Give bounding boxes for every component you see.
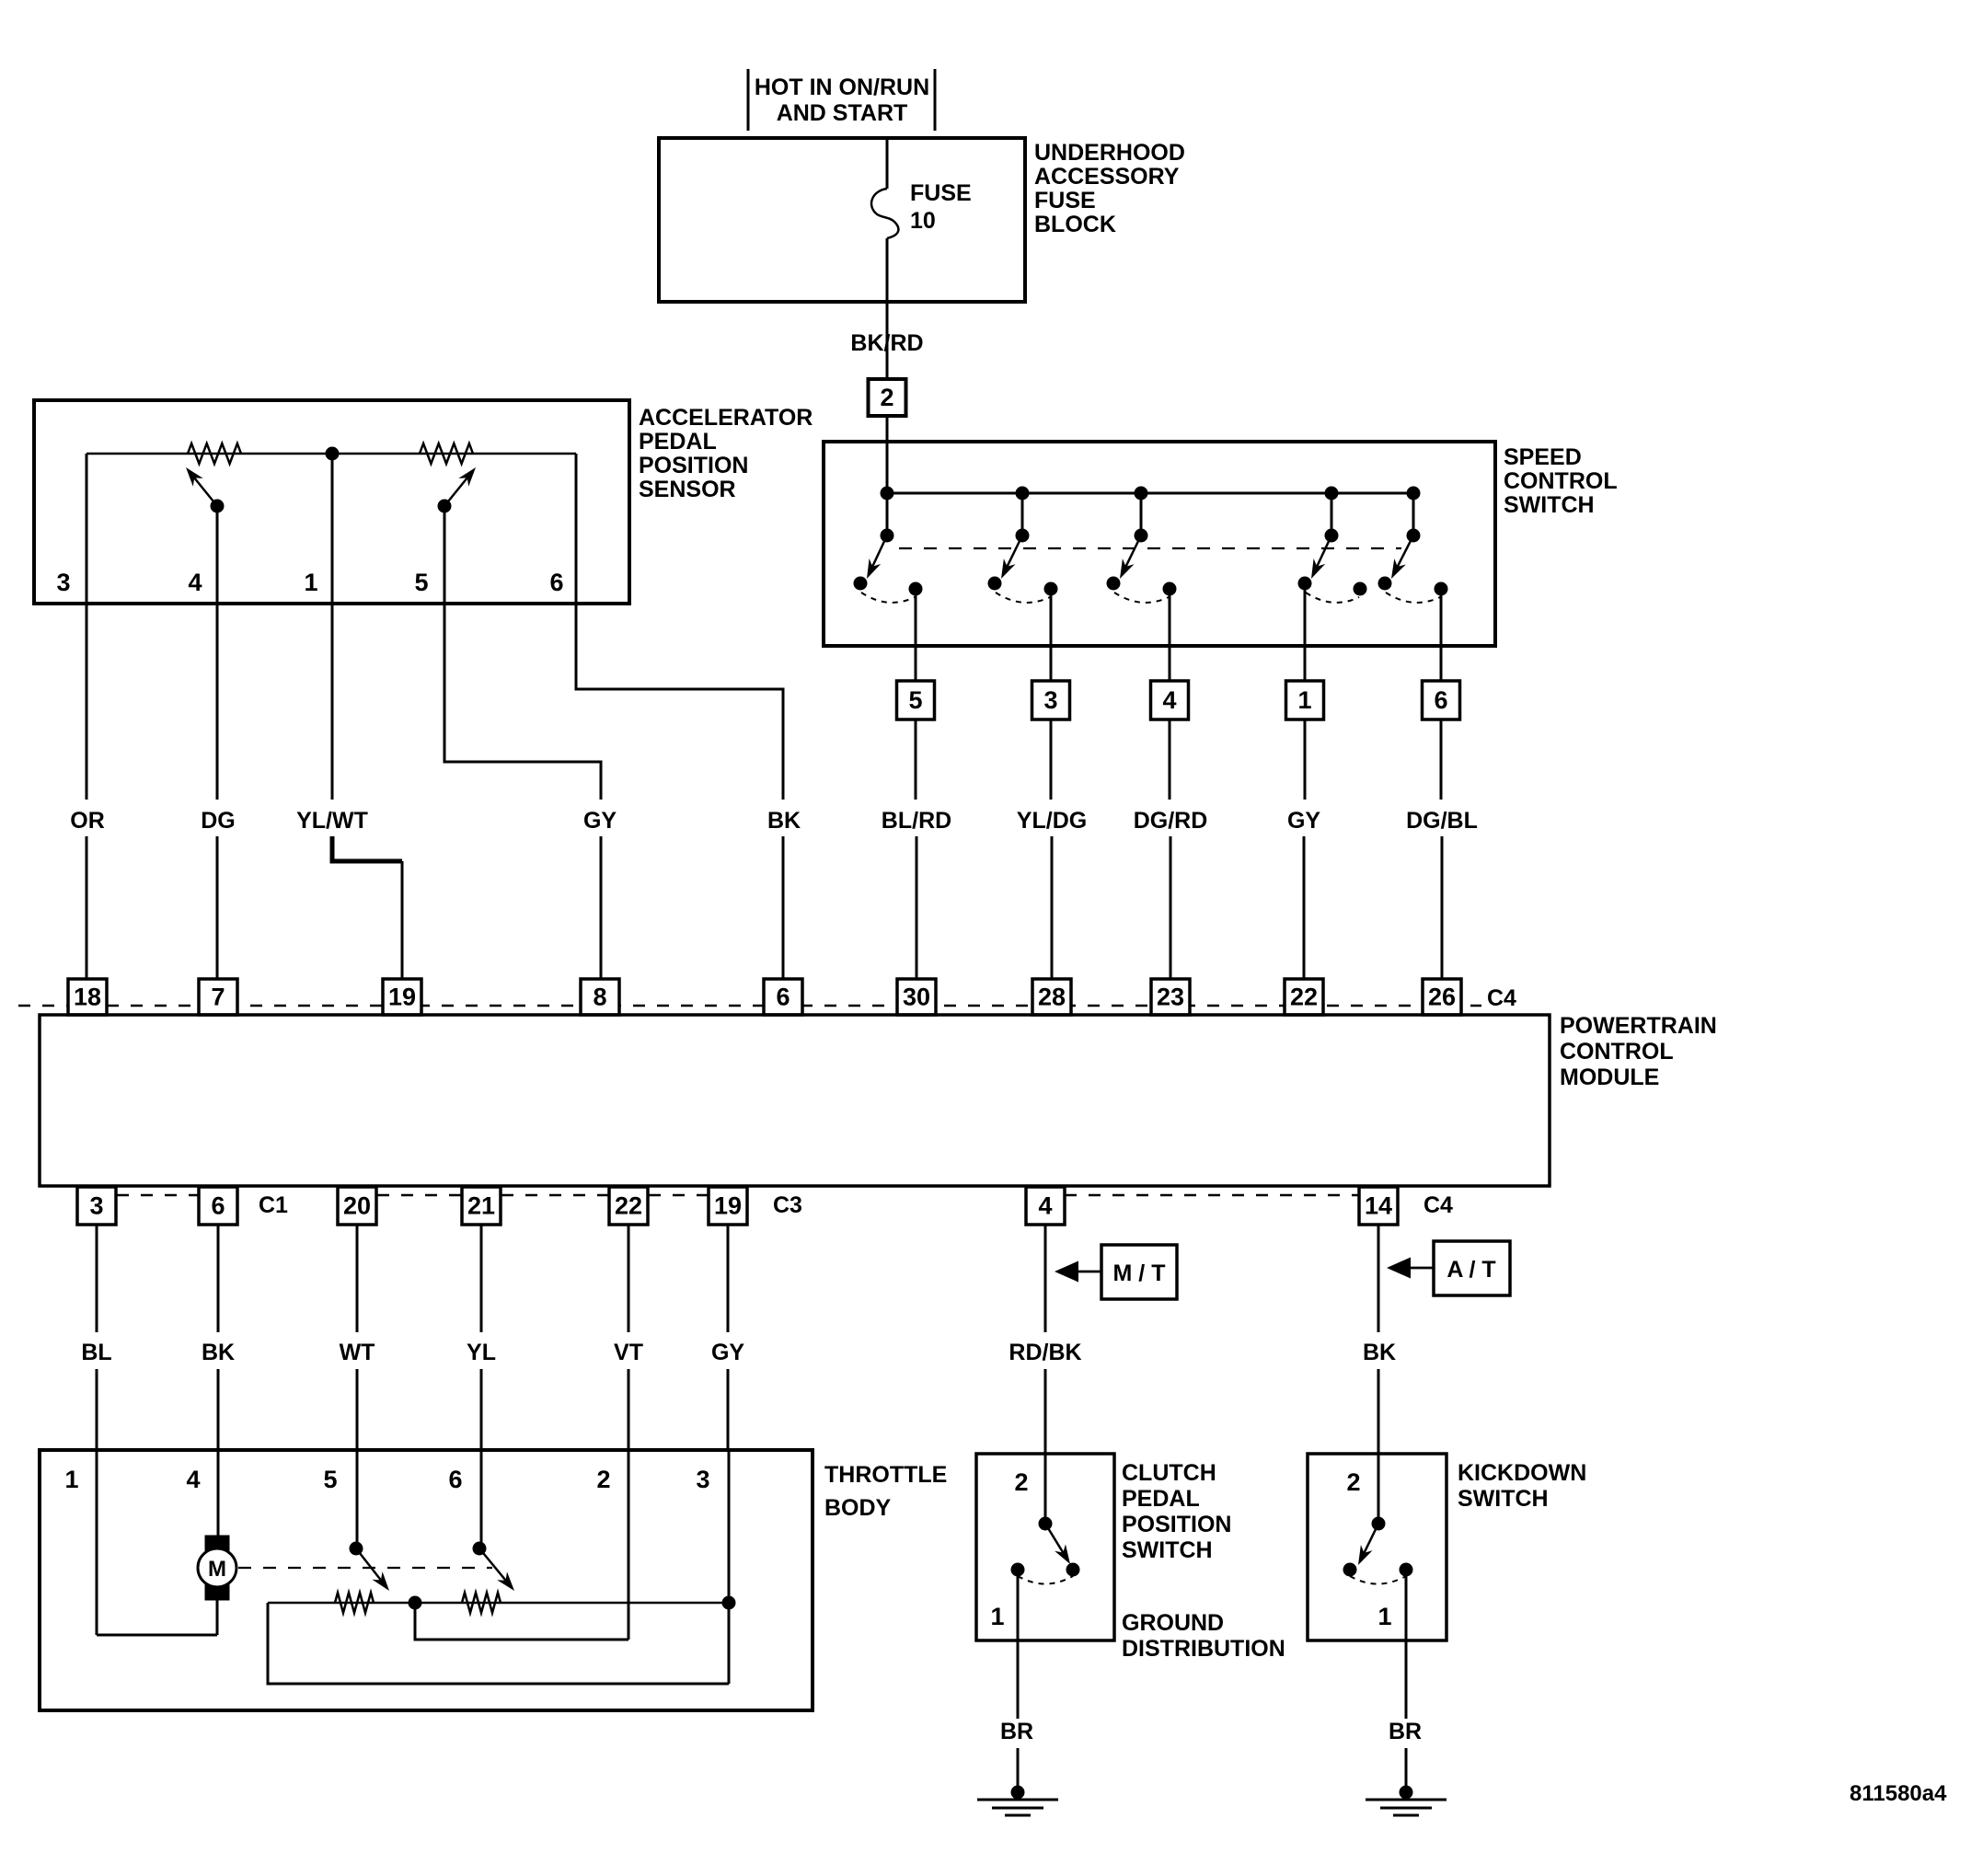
svg-text:GY: GY [583,808,617,834]
svg-text:28: 28 [1038,984,1066,1011]
svg-text:6: 6 [448,1466,462,1493]
svg-text:DG/BL: DG/BL [1406,808,1478,834]
svg-text:BK: BK [202,1340,235,1365]
svg-text:30: 30 [903,984,930,1011]
svg-text:4: 4 [186,1466,200,1493]
svg-text:YL: YL [467,1340,496,1365]
svg-text:BK: BK [1363,1340,1396,1365]
svg-text:FUSE: FUSE [1034,188,1096,213]
svg-text:CLUTCH: CLUTCH [1122,1460,1216,1486]
svg-text:1: 1 [1297,686,1311,714]
svg-text:M / T: M / T [1113,1260,1166,1286]
svg-text:22: 22 [1290,984,1318,1011]
svg-text:YL/WT: YL/WT [296,808,368,834]
svg-text:3: 3 [1043,686,1057,714]
svg-text:SWITCH: SWITCH [1504,492,1595,518]
svg-text:7: 7 [211,984,225,1011]
svg-text:6: 6 [1434,686,1447,714]
svg-text:3: 3 [696,1466,709,1493]
svg-text:BL/RD: BL/RD [882,808,951,834]
svg-text:FUSE: FUSE [910,180,972,206]
svg-text:VT: VT [614,1340,643,1365]
svg-text:8: 8 [593,984,606,1011]
svg-text:3: 3 [89,1192,103,1220]
svg-text:6: 6 [776,984,790,1011]
svg-text:SWITCH: SWITCH [1458,1486,1549,1512]
svg-text:1: 1 [1377,1603,1391,1630]
svg-text:1: 1 [304,569,317,596]
svg-text:C3: C3 [773,1192,802,1218]
svg-text:4: 4 [1038,1192,1052,1220]
svg-text:10: 10 [910,208,936,234]
svg-text:CONTROL: CONTROL [1504,468,1618,494]
svg-text:AND START: AND START [777,100,908,126]
svg-text:18: 18 [74,984,101,1011]
svg-text:811580a4: 811580a4 [1850,1781,1947,1806]
svg-text:BR: BR [1389,1719,1422,1744]
svg-text:BLOCK: BLOCK [1034,212,1116,237]
svg-text:OR: OR [70,808,105,834]
svg-text:3: 3 [56,569,70,596]
svg-text:PEDAL: PEDAL [639,429,717,455]
svg-text:19: 19 [388,984,416,1011]
svg-text:THROTTLE: THROTTLE [824,1462,947,1488]
svg-text:ACCELERATOR: ACCELERATOR [639,405,813,431]
svg-text:YL/DG: YL/DG [1017,808,1087,834]
svg-text:21: 21 [467,1192,495,1220]
svg-text:5: 5 [908,686,922,714]
svg-text:5: 5 [323,1466,337,1493]
svg-text:WT: WT [340,1340,375,1365]
svg-text:BL: BL [81,1340,111,1365]
svg-text:14: 14 [1365,1192,1392,1220]
svg-text:BR: BR [1000,1719,1033,1744]
svg-text:SPEED: SPEED [1504,444,1582,470]
svg-text:HOT IN ON/RUN: HOT IN ON/RUN [755,75,929,100]
svg-text:4: 4 [188,569,202,596]
svg-text:1: 1 [64,1466,78,1493]
svg-text:A / T: A / T [1447,1257,1495,1283]
svg-text:GY: GY [711,1340,744,1365]
svg-text:KICKDOWN: KICKDOWN [1458,1460,1586,1486]
svg-text:2: 2 [1014,1468,1028,1496]
svg-text:20: 20 [343,1192,371,1220]
svg-text:SENSOR: SENSOR [639,477,736,502]
svg-text:UNDERHOOD: UNDERHOOD [1034,140,1185,166]
svg-text:M: M [208,1557,226,1582]
svg-text:RD/BK: RD/BK [1009,1340,1081,1365]
svg-text:BK: BK [767,808,801,834]
svg-text:2: 2 [596,1466,610,1493]
svg-text:23: 23 [1157,984,1184,1011]
svg-text:C4: C4 [1423,1192,1453,1218]
svg-text:2: 2 [880,384,893,411]
svg-text:DG/RD: DG/RD [1134,808,1208,834]
svg-text:GY: GY [1287,808,1320,834]
svg-text:19: 19 [714,1192,742,1220]
svg-text:POSITION: POSITION [1122,1512,1231,1537]
svg-text:GROUND: GROUND [1122,1610,1224,1636]
svg-text:C1: C1 [259,1192,288,1218]
svg-text:SWITCH: SWITCH [1122,1537,1213,1563]
svg-text:4: 4 [1162,686,1176,714]
svg-text:POWERTRAIN: POWERTRAIN [1560,1013,1717,1039]
svg-text:C4: C4 [1487,985,1516,1011]
svg-text:CONTROL: CONTROL [1560,1039,1674,1065]
svg-text:BODY: BODY [824,1495,892,1521]
svg-text:22: 22 [615,1192,642,1220]
svg-text:POSITION: POSITION [639,453,748,478]
svg-text:26: 26 [1428,984,1456,1011]
svg-text:6: 6 [549,569,563,596]
svg-text:2: 2 [1346,1468,1360,1496]
svg-text:5: 5 [414,569,428,596]
svg-text:PEDAL: PEDAL [1122,1486,1200,1512]
svg-text:6: 6 [211,1192,225,1220]
svg-text:MODULE: MODULE [1560,1065,1659,1090]
svg-text:ACCESSORY: ACCESSORY [1034,164,1180,190]
svg-text:1: 1 [990,1603,1004,1630]
svg-text:DISTRIBUTION: DISTRIBUTION [1122,1636,1285,1662]
svg-text:DG: DG [201,808,236,834]
svg-text:BK/RD: BK/RD [850,330,923,356]
